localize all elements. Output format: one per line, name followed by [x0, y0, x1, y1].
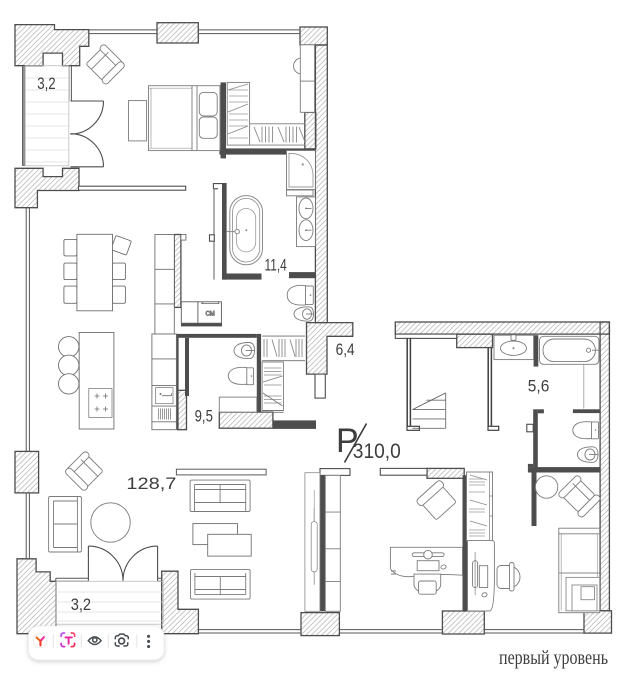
- svg-text:3,2: 3,2: [71, 596, 91, 614]
- svg-text:310,0: 310,0: [353, 440, 401, 463]
- svg-text:5,6: 5,6: [528, 378, 550, 396]
- svg-text:3,2: 3,2: [37, 75, 56, 93]
- svg-text:первый уровень: первый уровень: [499, 648, 608, 669]
- svg-text:СМ: СМ: [206, 312, 215, 318]
- svg-text:128,7: 128,7: [126, 474, 176, 493]
- svg-text:11,4: 11,4: [265, 257, 287, 275]
- svg-text:6,4: 6,4: [336, 341, 355, 359]
- svg-text:9,5: 9,5: [195, 408, 213, 426]
